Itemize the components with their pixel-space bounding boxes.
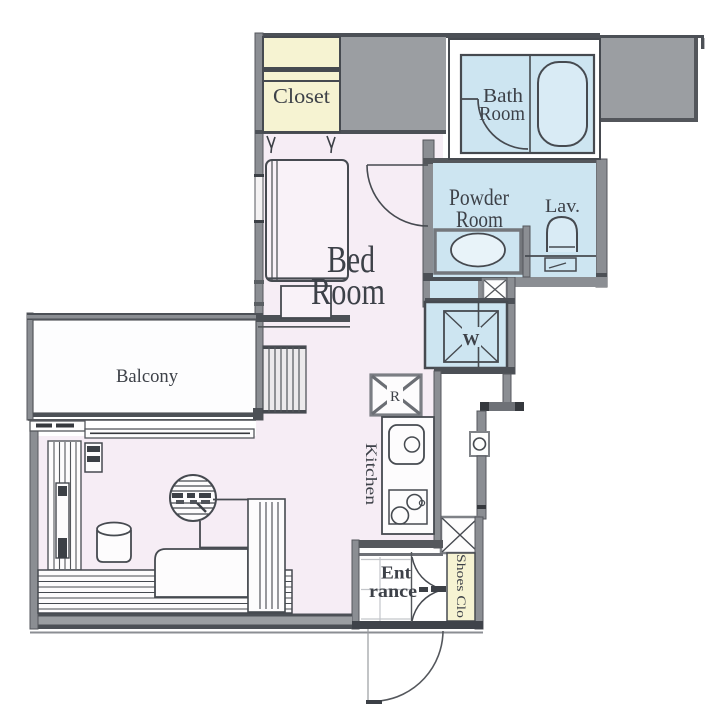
svg-text:Balcony: Balcony bbox=[116, 366, 178, 387]
svg-text:Kitchen: Kitchen bbox=[362, 443, 379, 505]
svg-text:Ent: Ent bbox=[381, 563, 411, 583]
svg-text:R: R bbox=[390, 389, 400, 405]
svg-text:Room: Room bbox=[311, 271, 385, 313]
svg-text:Lav.: Lav. bbox=[545, 196, 580, 217]
svg-text:Shoes Clo: Shoes Clo bbox=[454, 554, 469, 618]
svg-text:W: W bbox=[463, 330, 480, 349]
svg-text:Room: Room bbox=[479, 103, 525, 125]
svg-text:Closet: Closet bbox=[273, 84, 330, 108]
svg-text:rance: rance bbox=[369, 581, 417, 601]
